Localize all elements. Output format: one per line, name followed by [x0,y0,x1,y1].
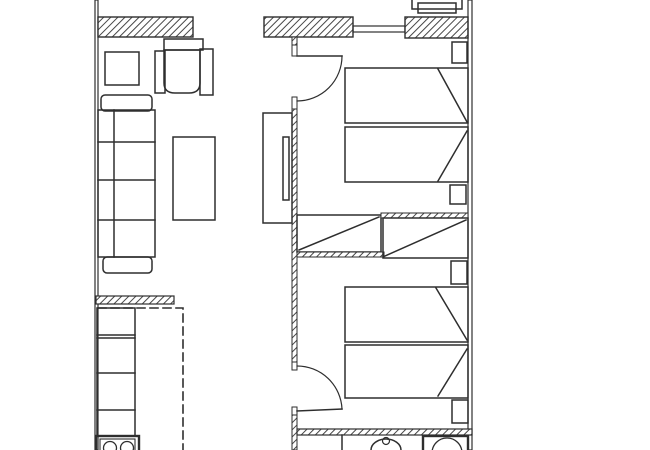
bedroom2-door [297,366,342,411]
mattress-3 [345,287,468,342]
armchair [155,39,213,95]
floor-plan-svg [0,0,650,450]
coffee-table [173,137,215,220]
armchair-seat [164,50,200,93]
blanket-fold [438,131,467,181]
blanket-fold [436,288,467,340]
side-table [105,52,139,85]
bathroom [342,435,468,450]
nightstand-1 [452,42,467,63]
tv [283,137,289,200]
mattress-2 [345,127,468,182]
nightstand-3 [451,261,467,284]
armchair-back [164,39,203,50]
balcony-furniture [412,0,462,13]
bedroom1-door [297,56,342,101]
hob [96,436,139,450]
blanket-fold [438,69,467,122]
mattress-4 [345,345,468,398]
washbasin-bowl [432,438,462,450]
armchair-armrest-right [200,49,213,95]
bathroom-wall [297,429,472,435]
tv-cabinet [263,113,292,223]
wardrobe-wall-strip [297,252,384,257]
sofa [98,95,155,273]
sofa-armrest-top [101,95,152,111]
top-wall-left [98,17,193,37]
nightstand-4 [452,400,468,423]
double-bed-2 [345,261,468,423]
balcony-window [353,26,405,32]
kitchen-counter [97,308,135,436]
mattress-1 [345,68,468,123]
floor-plan-image [0,0,650,450]
wardrobe-right [381,213,468,258]
blanket-fold [438,349,467,396]
top-wall-right [405,17,468,38]
wardrobe-left [297,215,384,257]
burner [104,442,117,450]
kitchen-dashed-boundary [98,308,183,450]
sofa-armrest-bottom [103,257,152,273]
burner [121,442,134,450]
kitchen-half-wall [96,296,174,304]
nightstand-2 [450,185,466,204]
top-wall-center [264,17,353,37]
double-bed-1 [345,42,468,204]
sofa-body [98,110,155,257]
